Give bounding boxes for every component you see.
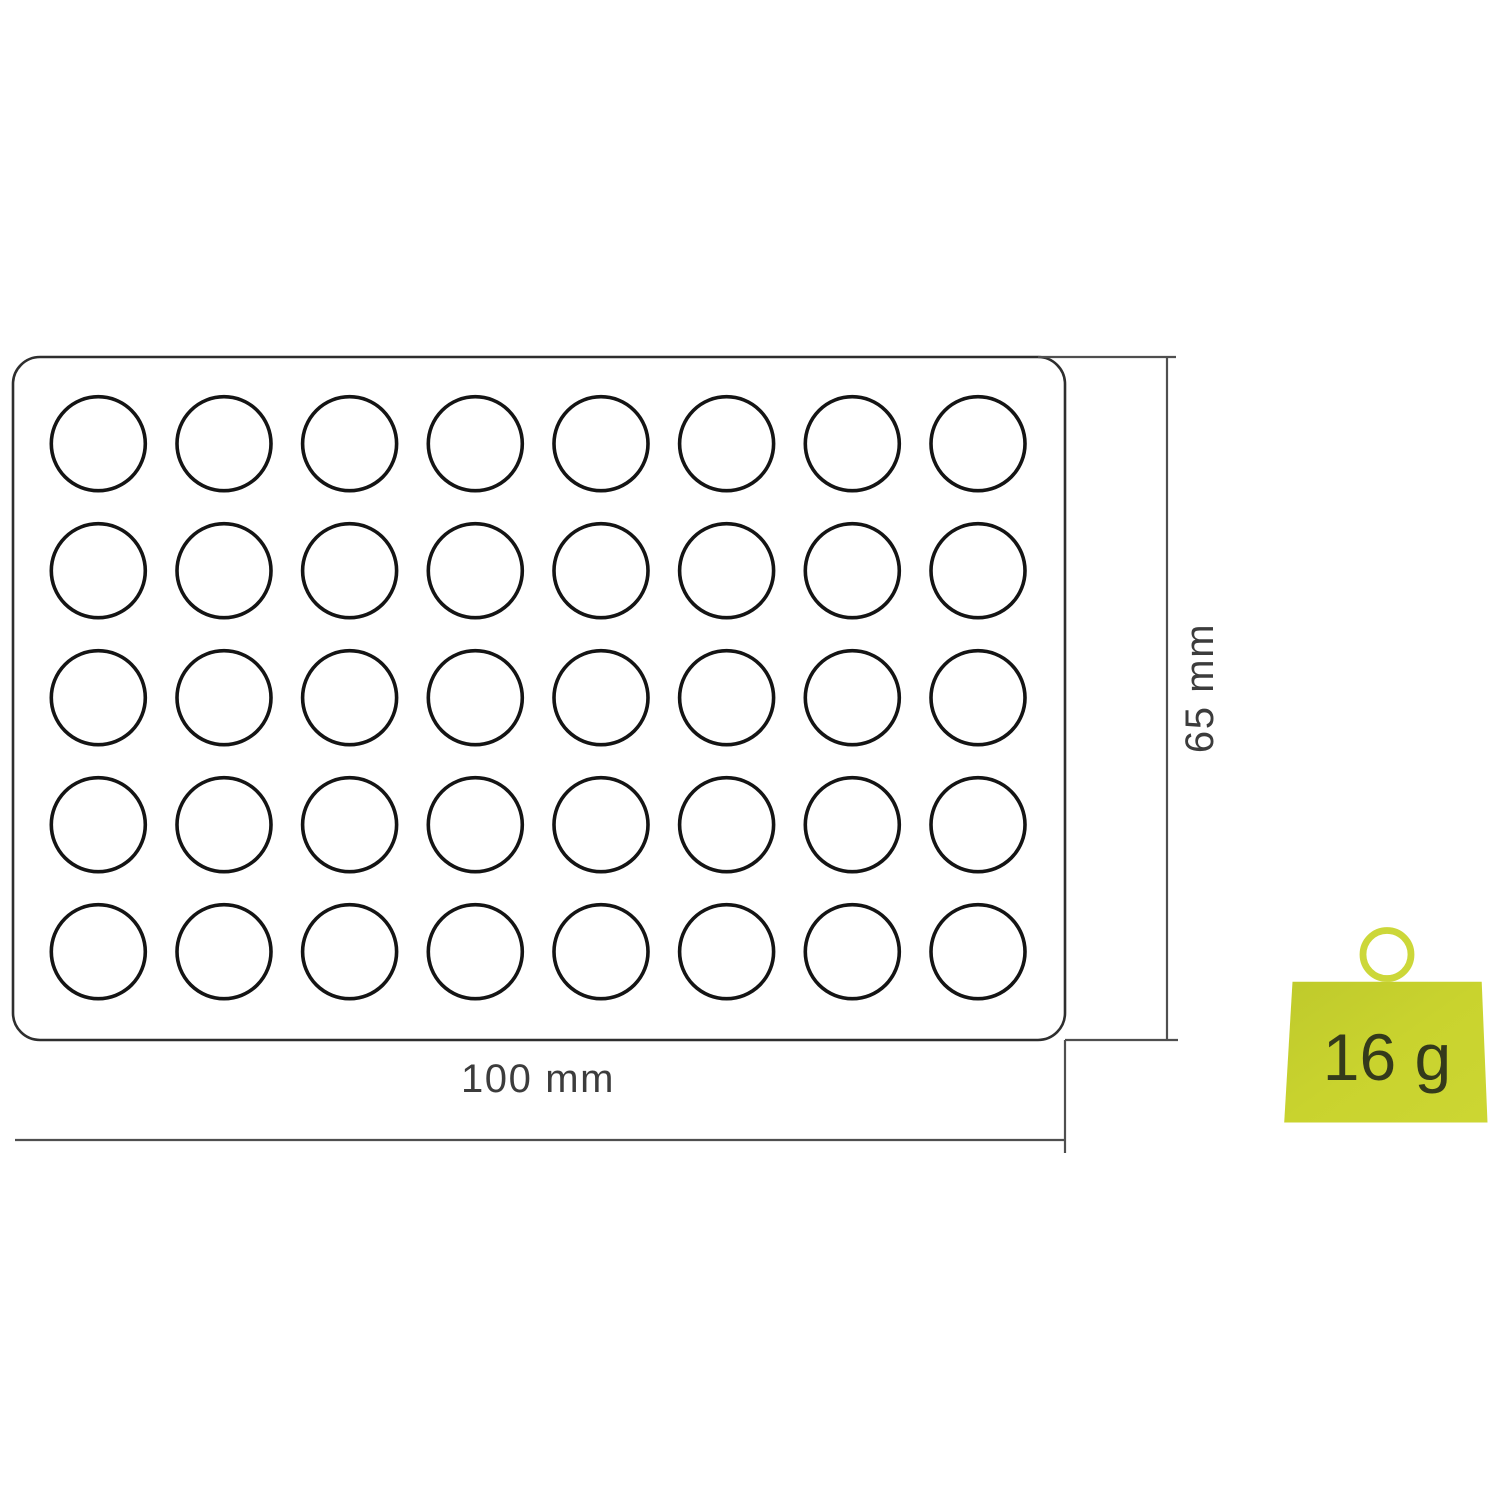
svg-text:65 mm: 65 mm <box>1178 623 1222 753</box>
svg-text:16 g: 16 g <box>1323 1020 1451 1094</box>
svg-text:100 mm: 100 mm <box>461 1057 615 1101</box>
